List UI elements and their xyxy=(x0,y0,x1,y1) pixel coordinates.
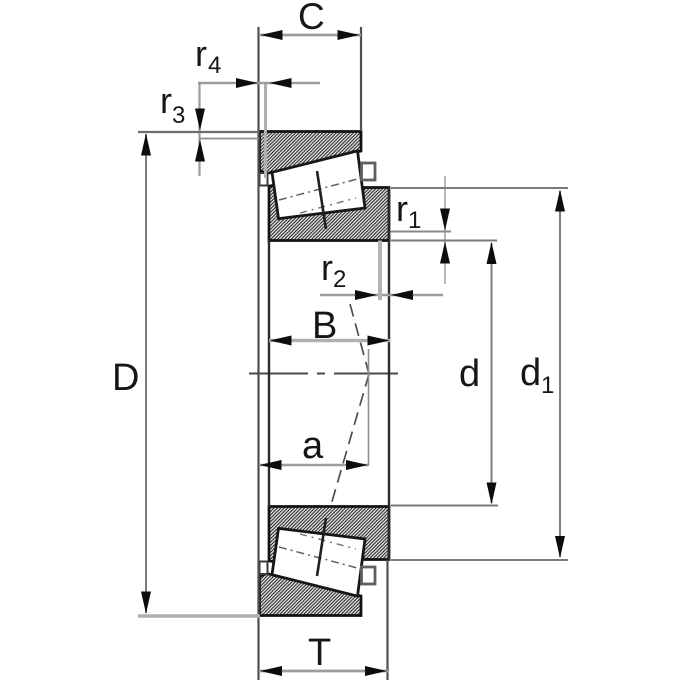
svg-text:4: 4 xyxy=(208,52,221,79)
svg-text:3: 3 xyxy=(172,102,185,129)
svg-text:d: d xyxy=(459,353,480,395)
svg-text:B: B xyxy=(312,305,337,347)
svg-text:C: C xyxy=(298,0,325,37)
svg-text:2: 2 xyxy=(333,266,346,293)
svg-text:r: r xyxy=(160,80,172,121)
svg-text:D: D xyxy=(112,357,139,399)
svg-text:T: T xyxy=(308,632,331,674)
svg-text:a: a xyxy=(302,425,324,467)
svg-text:r: r xyxy=(321,247,333,288)
svg-text:d: d xyxy=(520,352,541,394)
svg-text:r: r xyxy=(396,188,408,229)
svg-text:1: 1 xyxy=(541,372,554,399)
svg-text:1: 1 xyxy=(408,207,421,234)
svg-text:r: r xyxy=(195,33,207,74)
